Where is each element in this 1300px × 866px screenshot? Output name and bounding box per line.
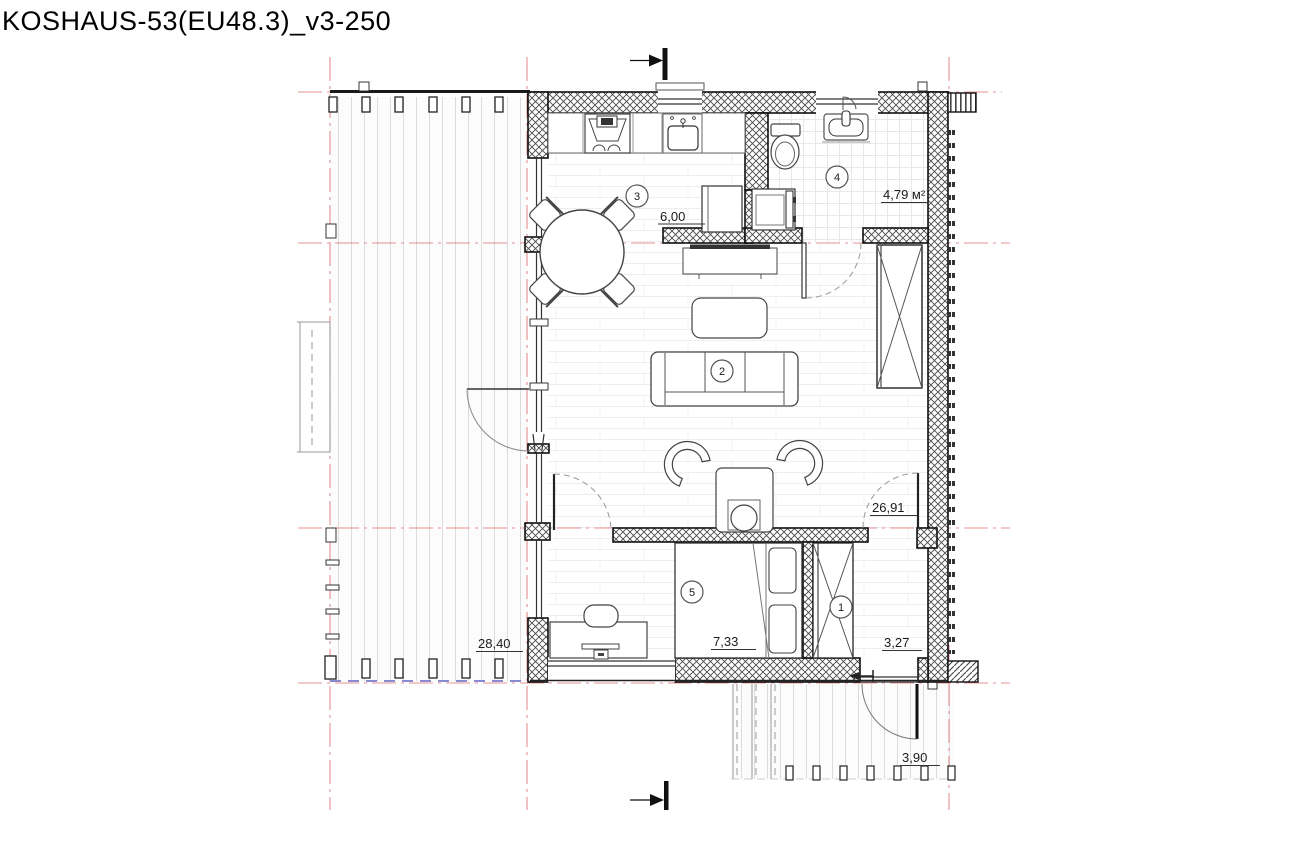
washbasin-icon [822,111,870,142]
window-bedroom [548,657,675,682]
dim-bathroom: 4,79 м² [881,187,929,203]
stool-icon [731,505,757,531]
dining-table [540,210,624,294]
wall-hall-pier [917,528,937,548]
laptop-icon [582,644,619,649]
terrace-top-box [359,82,369,91]
pillow [769,548,796,593]
svg-text:6,00: 6,00 [660,209,685,224]
wall-bottom-bedroom [675,658,860,682]
wall-top-2 [700,92,818,113]
svg-text:3: 3 [634,191,640,203]
svg-text:26,91: 26,91 [872,500,905,515]
wall-left-pier-bottom [528,618,548,682]
desk-chair [584,605,618,627]
wall-bottom-hall [918,658,928,682]
dining-set [528,197,636,307]
floor-plan: 6,00 4,79 м² 26,91 7,33 3,27 28,40 [0,0,1300,866]
screen-bottom-right [948,661,978,682]
room-badge-hall: 1 [830,596,852,618]
svg-text:4,79 м²: 4,79 м² [883,187,926,202]
toilet-icon [771,124,800,169]
section-marker-top [630,48,668,80]
wall-bath-bottom-right [863,228,928,243]
wall-bedroom-hall [803,542,813,658]
pillow [769,605,796,653]
room-badge-bedroom: 5 [681,581,703,603]
kitchen-cabinet [702,186,742,232]
wardrobe-living [877,245,922,388]
vent-box [918,82,927,91]
tv-icon [690,245,770,250]
sink-icon [663,114,702,153]
floor-plan-canvas: KOSHAUS-53(EU48.3)_v3-250 [0,0,1300,866]
entry-threshold [860,677,918,682]
side-table-stool [716,468,773,532]
svg-text:7,33: 7,33 [713,634,738,649]
wall-left-door-block [528,444,549,453]
kitchen-counter [548,113,745,153]
svg-text:3,90: 3,90 [902,750,927,765]
terrace-ramp [297,322,330,452]
screen-top-right [948,93,976,112]
svg-text:3,27: 3,27 [884,635,909,650]
room-badge-kitchen: 3 [626,185,648,207]
wall-left-pier-top [528,92,548,158]
svg-text:2: 2 [719,366,725,378]
wall-left-axis-block-2 [525,523,550,540]
cladding-teeth [948,126,955,654]
svg-text:1: 1 [838,602,844,614]
wall-kitchen-bath [745,113,768,190]
coffee-table [692,298,767,338]
svg-text:5: 5 [689,587,695,599]
svg-text:4: 4 [834,172,840,184]
room-badge-bathroom: 4 [826,166,848,188]
svg-text:28,40: 28,40 [478,636,511,651]
room-badge-living: 2 [711,360,733,382]
stove-icon [585,114,630,153]
section-marker-bottom [630,781,669,810]
washing-machine-icon [752,189,796,230]
wall-right [928,92,948,682]
tv-console [683,245,777,280]
